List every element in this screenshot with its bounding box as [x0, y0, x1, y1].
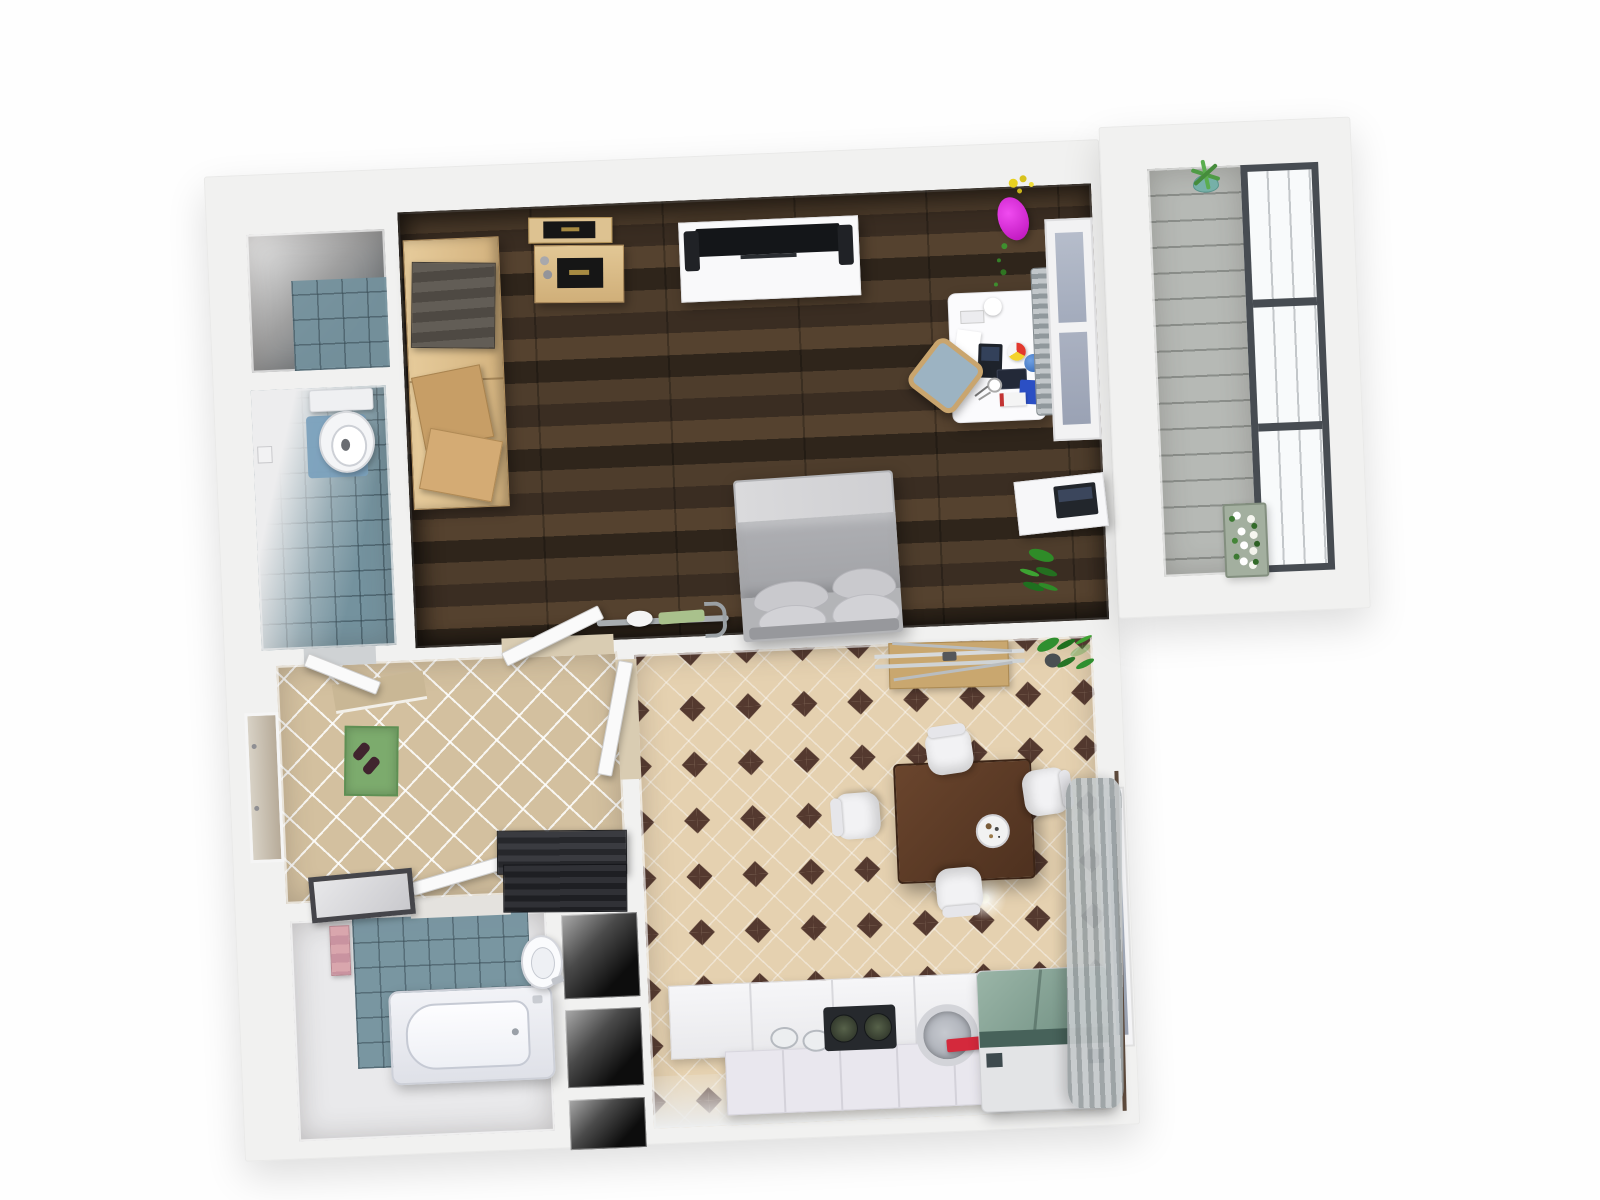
burner — [863, 1013, 892, 1042]
entry-mat — [344, 726, 399, 797]
decor-jars — [540, 256, 549, 265]
burner — [829, 1014, 858, 1043]
sideboard — [534, 245, 624, 304]
dining-table — [893, 758, 1036, 884]
shoe — [351, 741, 371, 762]
fridge-top-seam — [1033, 969, 1042, 1033]
dining-chair — [834, 791, 881, 840]
bed — [733, 470, 904, 643]
plate — [975, 813, 1010, 848]
living-window — [1044, 217, 1101, 441]
bathtub — [388, 985, 556, 1086]
shoe-rack — [497, 830, 626, 911]
washbasin-bowl — [530, 947, 555, 980]
shelf-niche — [561, 912, 640, 999]
room-storage — [246, 229, 390, 373]
window-bar — [1253, 297, 1317, 308]
page-background — [0, 0, 1600, 1200]
floor-mirror — [308, 868, 416, 924]
framed-art — [557, 258, 603, 288]
shelf-niche — [565, 1007, 644, 1088]
bike-saddle — [626, 610, 653, 627]
dining-chair — [934, 866, 984, 914]
fridge-hinge — [986, 1053, 1003, 1068]
bathtub-drain — [512, 1028, 519, 1035]
folded-clothes — [419, 428, 503, 503]
toilet-tank — [309, 388, 374, 413]
art-gold-mark — [561, 227, 579, 231]
book — [1000, 392, 1027, 406]
dining-chair — [1020, 766, 1070, 818]
tv-stand — [678, 215, 861, 302]
window-glass — [1059, 332, 1091, 425]
curtain — [1065, 778, 1123, 1108]
television — [695, 223, 840, 257]
cabinet-seams — [782, 1050, 787, 1112]
entrance-door-recess — [244, 712, 284, 863]
counter-seams — [749, 983, 754, 1055]
laptop-screen — [981, 347, 999, 361]
storage-tile-floor — [291, 277, 390, 371]
laptop — [1053, 482, 1098, 518]
framed-art — [543, 221, 595, 238]
door-hinge — [252, 744, 257, 749]
doorway-bathroom — [410, 894, 511, 918]
bathtub-faucet — [532, 995, 542, 1003]
flower-planter — [1222, 502, 1269, 578]
pink-towels — [329, 925, 351, 976]
towel-stack — [411, 262, 496, 349]
plate-food — [986, 823, 992, 829]
shoe — [361, 755, 381, 776]
laptop-screen — [1058, 486, 1093, 502]
notepad — [960, 310, 985, 324]
art-gold-mark — [569, 270, 589, 275]
shoe-rack-shelf — [503, 864, 627, 913]
window-bar — [1258, 421, 1322, 432]
floor-plan — [0, 0, 1600, 1200]
stove — [823, 1004, 897, 1051]
window-glass — [1055, 232, 1087, 323]
laptop-side-table — [1013, 472, 1108, 536]
toilet-paper-holder — [257, 446, 273, 464]
speaker — [837, 224, 854, 265]
airer-hinge — [942, 652, 956, 662]
bathtub-basin — [405, 1000, 532, 1071]
shelf-niche — [569, 1097, 647, 1150]
exercise-bike — [596, 599, 738, 645]
speaker — [683, 231, 700, 272]
bike-handlebar — [704, 601, 727, 638]
planter-foliage — [1229, 516, 1235, 522]
bike-frame — [658, 609, 705, 624]
wall-shelf — [528, 217, 612, 244]
dining-chair — [924, 727, 976, 777]
